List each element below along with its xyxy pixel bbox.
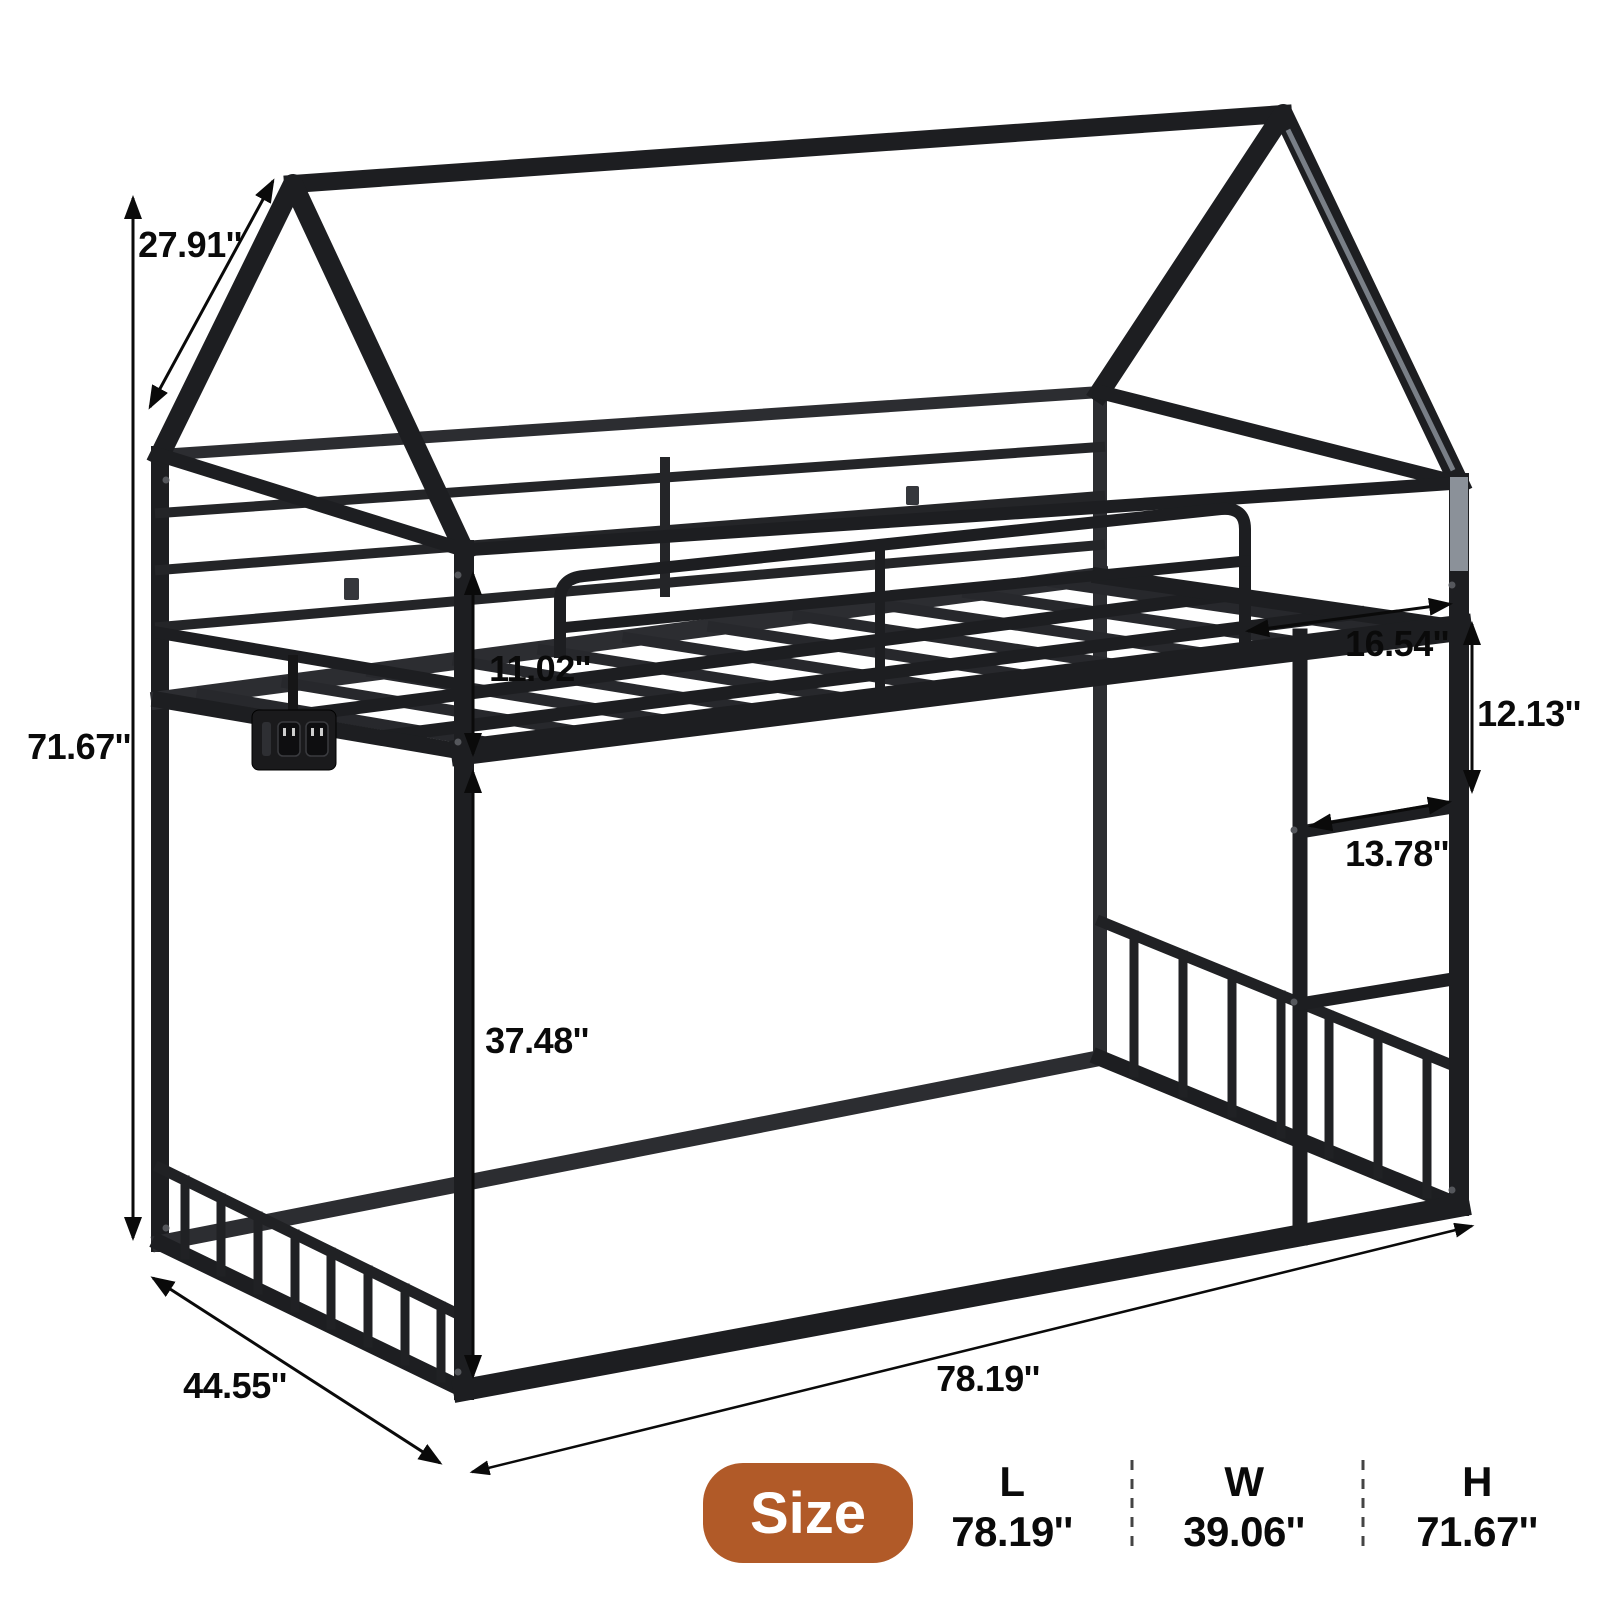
bolt (1291, 999, 1298, 1006)
dim-label-base-depth: 44.55'' (183, 1365, 287, 1406)
dim-label-base-length: 78.19'' (936, 1358, 1040, 1399)
dim-arrow-roof-edge (150, 181, 273, 407)
bed-frame (160, 114, 1459, 1390)
outlet-pin (320, 728, 323, 736)
bolt (455, 1369, 462, 1376)
back-eave-beam (160, 392, 1100, 455)
wall-mount-bracket (344, 578, 359, 600)
outlet-socket (262, 722, 271, 756)
outlet-pin (311, 728, 314, 736)
bolt (1291, 827, 1298, 834)
dim-label-guardrail-to-slats: 11.02'' (489, 648, 591, 689)
roof-right-gable-sheen (1289, 132, 1452, 468)
dim-label-rung-length: 13.78'' (1345, 833, 1449, 874)
outlet-pin (283, 728, 286, 736)
foot-end-fence (1102, 922, 1459, 1194)
bolt (455, 572, 462, 579)
ladder-rung (1300, 806, 1459, 832)
dim-under-bed-clearance: 37.48'' (473, 772, 589, 1376)
dim-label-rung-spacing: 12.13'' (1477, 693, 1581, 734)
right-gable-base-beam (1100, 392, 1459, 483)
bolt (1449, 1187, 1456, 1194)
bunk-bed-dimension-diagram: 27.91'' 71.67'' 11.02'' 37.48'' 16.54'' … (0, 0, 1600, 1600)
outlet-socket (306, 722, 328, 756)
dim-label-roof-edge: 27.91'' (138, 224, 242, 265)
outlet-socket (278, 722, 300, 756)
bolt (455, 739, 462, 746)
bolt (163, 477, 170, 484)
size-column-label: W (1224, 1458, 1264, 1505)
dim-label-ladder-opening-width: 16.54'' (1345, 623, 1449, 664)
dim-arrow-base-length (472, 1226, 1472, 1472)
bolt (1449, 582, 1456, 589)
floor-back-rail (160, 1058, 1100, 1243)
wall-mount-bracket (906, 486, 919, 505)
size-panel: Size L 78.19'' W 39.06'' H 71.67'' (703, 1458, 1538, 1563)
size-column-height: H 71.67'' (1416, 1458, 1538, 1555)
size-column-value: 39.06'' (1183, 1508, 1305, 1555)
roof-right-gable (1100, 114, 1459, 483)
size-column-value: 71.67'' (1416, 1508, 1538, 1555)
outlet-pin (292, 728, 295, 736)
product-dimension-image: 27.91'' 71.67'' 11.02'' 37.48'' 16.54'' … (0, 0, 1600, 1600)
dim-rung-spacing: 12.13'' (1472, 624, 1581, 791)
ladder-rung (1300, 978, 1459, 1004)
size-column-width: W 39.06'' (1183, 1458, 1305, 1555)
size-column-label: H (1462, 1458, 1492, 1505)
dim-overall-height: 71.67'' (27, 198, 133, 1238)
dim-base-length: 78.19'' (472, 1226, 1472, 1472)
size-column-length: L 78.19'' (951, 1458, 1073, 1555)
bolt (163, 1225, 170, 1232)
size-column-label: L (999, 1458, 1024, 1505)
dim-label-under-bed-clearance: 37.48'' (485, 1020, 589, 1061)
lower-bunk-frame (160, 1058, 1459, 1390)
size-column-value: 78.19'' (951, 1508, 1073, 1555)
dim-label-overall-height: 71.67'' (27, 726, 131, 767)
ridge-beam (293, 114, 1283, 184)
size-badge-label: Size (750, 1481, 866, 1546)
